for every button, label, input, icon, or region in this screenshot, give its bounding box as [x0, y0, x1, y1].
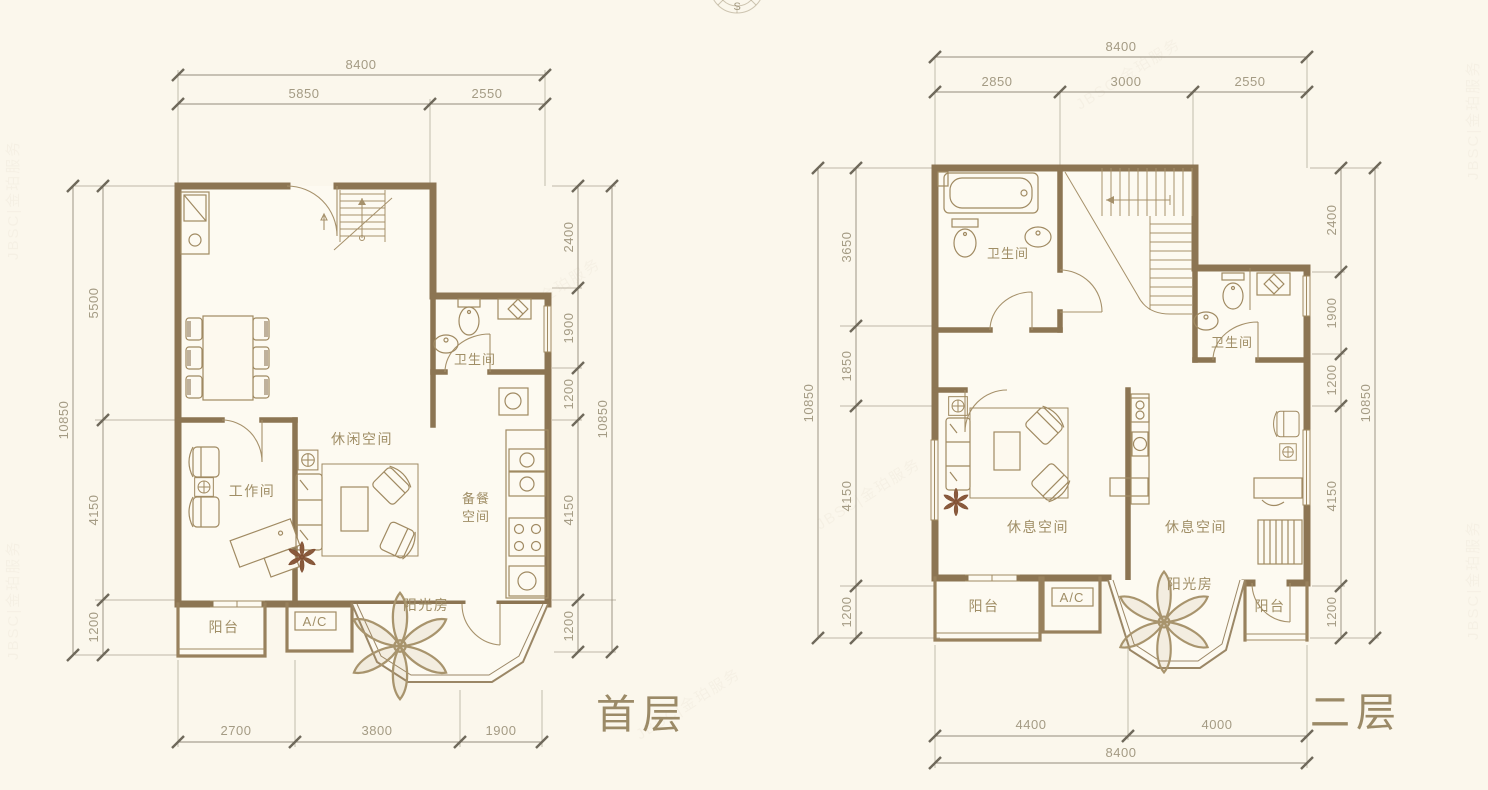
watermark-text: JBSC|金珀服务 — [1465, 520, 1482, 640]
p1-dim-right-5: 1200 — [561, 611, 576, 642]
plan-first-floor: 8400 5850 2550 10850 5500 4150 1200 2400… — [56, 57, 688, 748]
watermark-text: JBSC|金珀服务 — [5, 540, 22, 660]
p2-dim-right-total: 10850 — [1358, 384, 1373, 423]
p2-label-ac: A/C — [1060, 590, 1085, 605]
floorplan-canvas: JBSC|金珀服务 JBSC|金珀服务 JBSC|金珀服务 JBSC|金珀服务 … — [0, 0, 1488, 790]
watermark-text: JBSC|金珀服务 — [1465, 60, 1482, 180]
p1-dim-right-1: 2400 — [561, 222, 576, 253]
p1-label-bathroom: 卫生间 — [454, 352, 496, 367]
p2-dim-top-total: 8400 — [1106, 39, 1137, 54]
p2-dim-right-3: 1200 — [1324, 365, 1339, 396]
plan-second-floor: 8400 2850 3000 2550 10850 3650 1850 4150… — [801, 39, 1402, 769]
p2-dim-bottom-2: 4000 — [1202, 717, 1233, 732]
p2-dim-left-2: 1850 — [839, 351, 854, 382]
p2-dim-bottom-total: 8400 — [1106, 745, 1137, 760]
p1-dim-right-4: 4150 — [561, 495, 576, 526]
compass-rose: S — [710, 0, 764, 13]
p1-dim-left-3: 1200 — [86, 612, 101, 643]
p1-label-ac: A/C — [303, 614, 328, 629]
p2-label-bathroom-top: 卫生间 — [987, 246, 1029, 261]
p2-label-bathroom-right: 卫生间 — [1211, 335, 1253, 350]
p1-dim-left-total: 10850 — [56, 401, 71, 440]
watermark-text: JBSC|金珀服务 — [5, 140, 22, 260]
p1-dim-right-2: 1900 — [561, 313, 576, 344]
p2-label-rest-right: 休息空间 — [1165, 519, 1227, 535]
p1-label-pantry-line2: 空间 — [462, 509, 490, 524]
watermark-text: JBSC|金珀服务 — [813, 455, 924, 533]
p2-dim-left-1: 3650 — [839, 232, 854, 263]
p1-label-pantry-line1: 备餐 — [462, 491, 490, 506]
p1-dim-right-3: 1200 — [561, 379, 576, 410]
floorplan-drawing: JBSC|金珀服务 JBSC|金珀服务 JBSC|金珀服务 JBSC|金珀服务 … — [0, 0, 1488, 790]
plan1-title: 首层 — [596, 693, 688, 737]
p1-dim-left-2: 4150 — [86, 495, 101, 526]
p2-label-balcony-right: 阳台 — [1255, 598, 1286, 614]
p1-label-sunroom: 阳光房 — [403, 597, 450, 613]
p1-dim-top-total: 8400 — [346, 57, 377, 72]
p2-dim-right-2: 1900 — [1324, 298, 1339, 329]
p1-dim-bottom-1: 2700 — [221, 723, 252, 738]
p2-dim-right-4: 4150 — [1324, 481, 1339, 512]
p2-dim-top-1: 2850 — [982, 74, 1013, 89]
compass-south-label: S — [734, 1, 741, 13]
p1-dim-left-1: 5500 — [86, 288, 101, 319]
p2-dim-left-total: 10850 — [801, 384, 816, 423]
p1-label-leisure: 休闲空间 — [331, 431, 393, 447]
p1-dim-top-1: 5850 — [289, 86, 320, 101]
p2-dim-right-1: 2400 — [1324, 205, 1339, 236]
plan2-title: 二层 — [1310, 691, 1402, 735]
p1-dim-top-2: 2550 — [472, 86, 503, 101]
p1-dim-right-total: 10850 — [595, 400, 610, 439]
p2-label-balcony-left: 阳台 — [969, 598, 1000, 614]
p1-dim-bottom-2: 3800 — [362, 723, 393, 738]
p2-label-rest-left: 休息空间 — [1007, 519, 1069, 535]
p2-label-sunroom: 阳光房 — [1167, 576, 1214, 592]
p1-label-balcony: 阳台 — [209, 619, 240, 635]
p2-dim-right-5: 1200 — [1324, 597, 1339, 628]
p2-dim-top-2: 3000 — [1111, 74, 1142, 89]
p2-dim-left-4: 1200 — [839, 597, 854, 628]
p2-dim-left-3: 4150 — [839, 481, 854, 512]
p2-dim-bottom-1: 4400 — [1016, 717, 1047, 732]
p1-dim-bottom-3: 1900 — [486, 723, 517, 738]
p2-dim-top-3: 2550 — [1235, 74, 1266, 89]
p1-label-workroom: 工作间 — [229, 483, 276, 499]
